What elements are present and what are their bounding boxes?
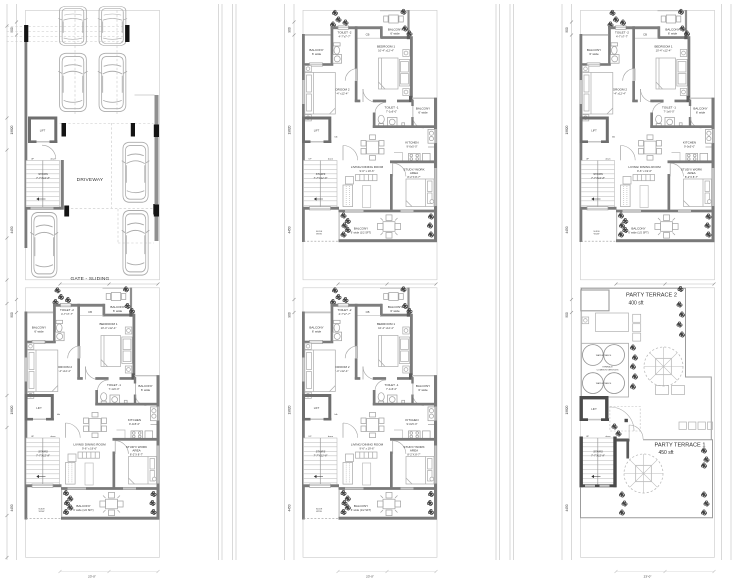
svg-text:900: 900 — [565, 27, 569, 33]
svg-text:4450: 4450 — [288, 226, 292, 233]
svg-text:900: 900 — [565, 312, 569, 318]
svg-text:19820: 19820 — [288, 125, 292, 134]
svg-text:900: 900 — [288, 27, 292, 33]
svg-text:19820: 19820 — [565, 405, 569, 414]
svg-text:23'-0": 23'-0" — [366, 575, 374, 579]
svg-text:4450: 4450 — [288, 504, 292, 511]
svg-text:900: 900 — [10, 312, 14, 318]
svg-text:4450: 4450 — [565, 504, 569, 511]
svg-text:19820: 19820 — [10, 405, 14, 414]
svg-text:19820: 19820 — [288, 405, 292, 414]
svg-text:23'-0": 23'-0" — [88, 575, 96, 579]
svg-text:4450: 4450 — [10, 226, 14, 233]
svg-text:900: 900 — [288, 312, 292, 318]
svg-text:4450: 4450 — [10, 504, 14, 511]
svg-text:4450: 4450 — [565, 226, 569, 233]
svg-text:19820: 19820 — [565, 125, 569, 134]
svg-text:23'-0": 23'-0" — [644, 575, 652, 579]
svg-text:900: 900 — [10, 27, 14, 33]
svg-text:19820: 19820 — [10, 125, 14, 134]
